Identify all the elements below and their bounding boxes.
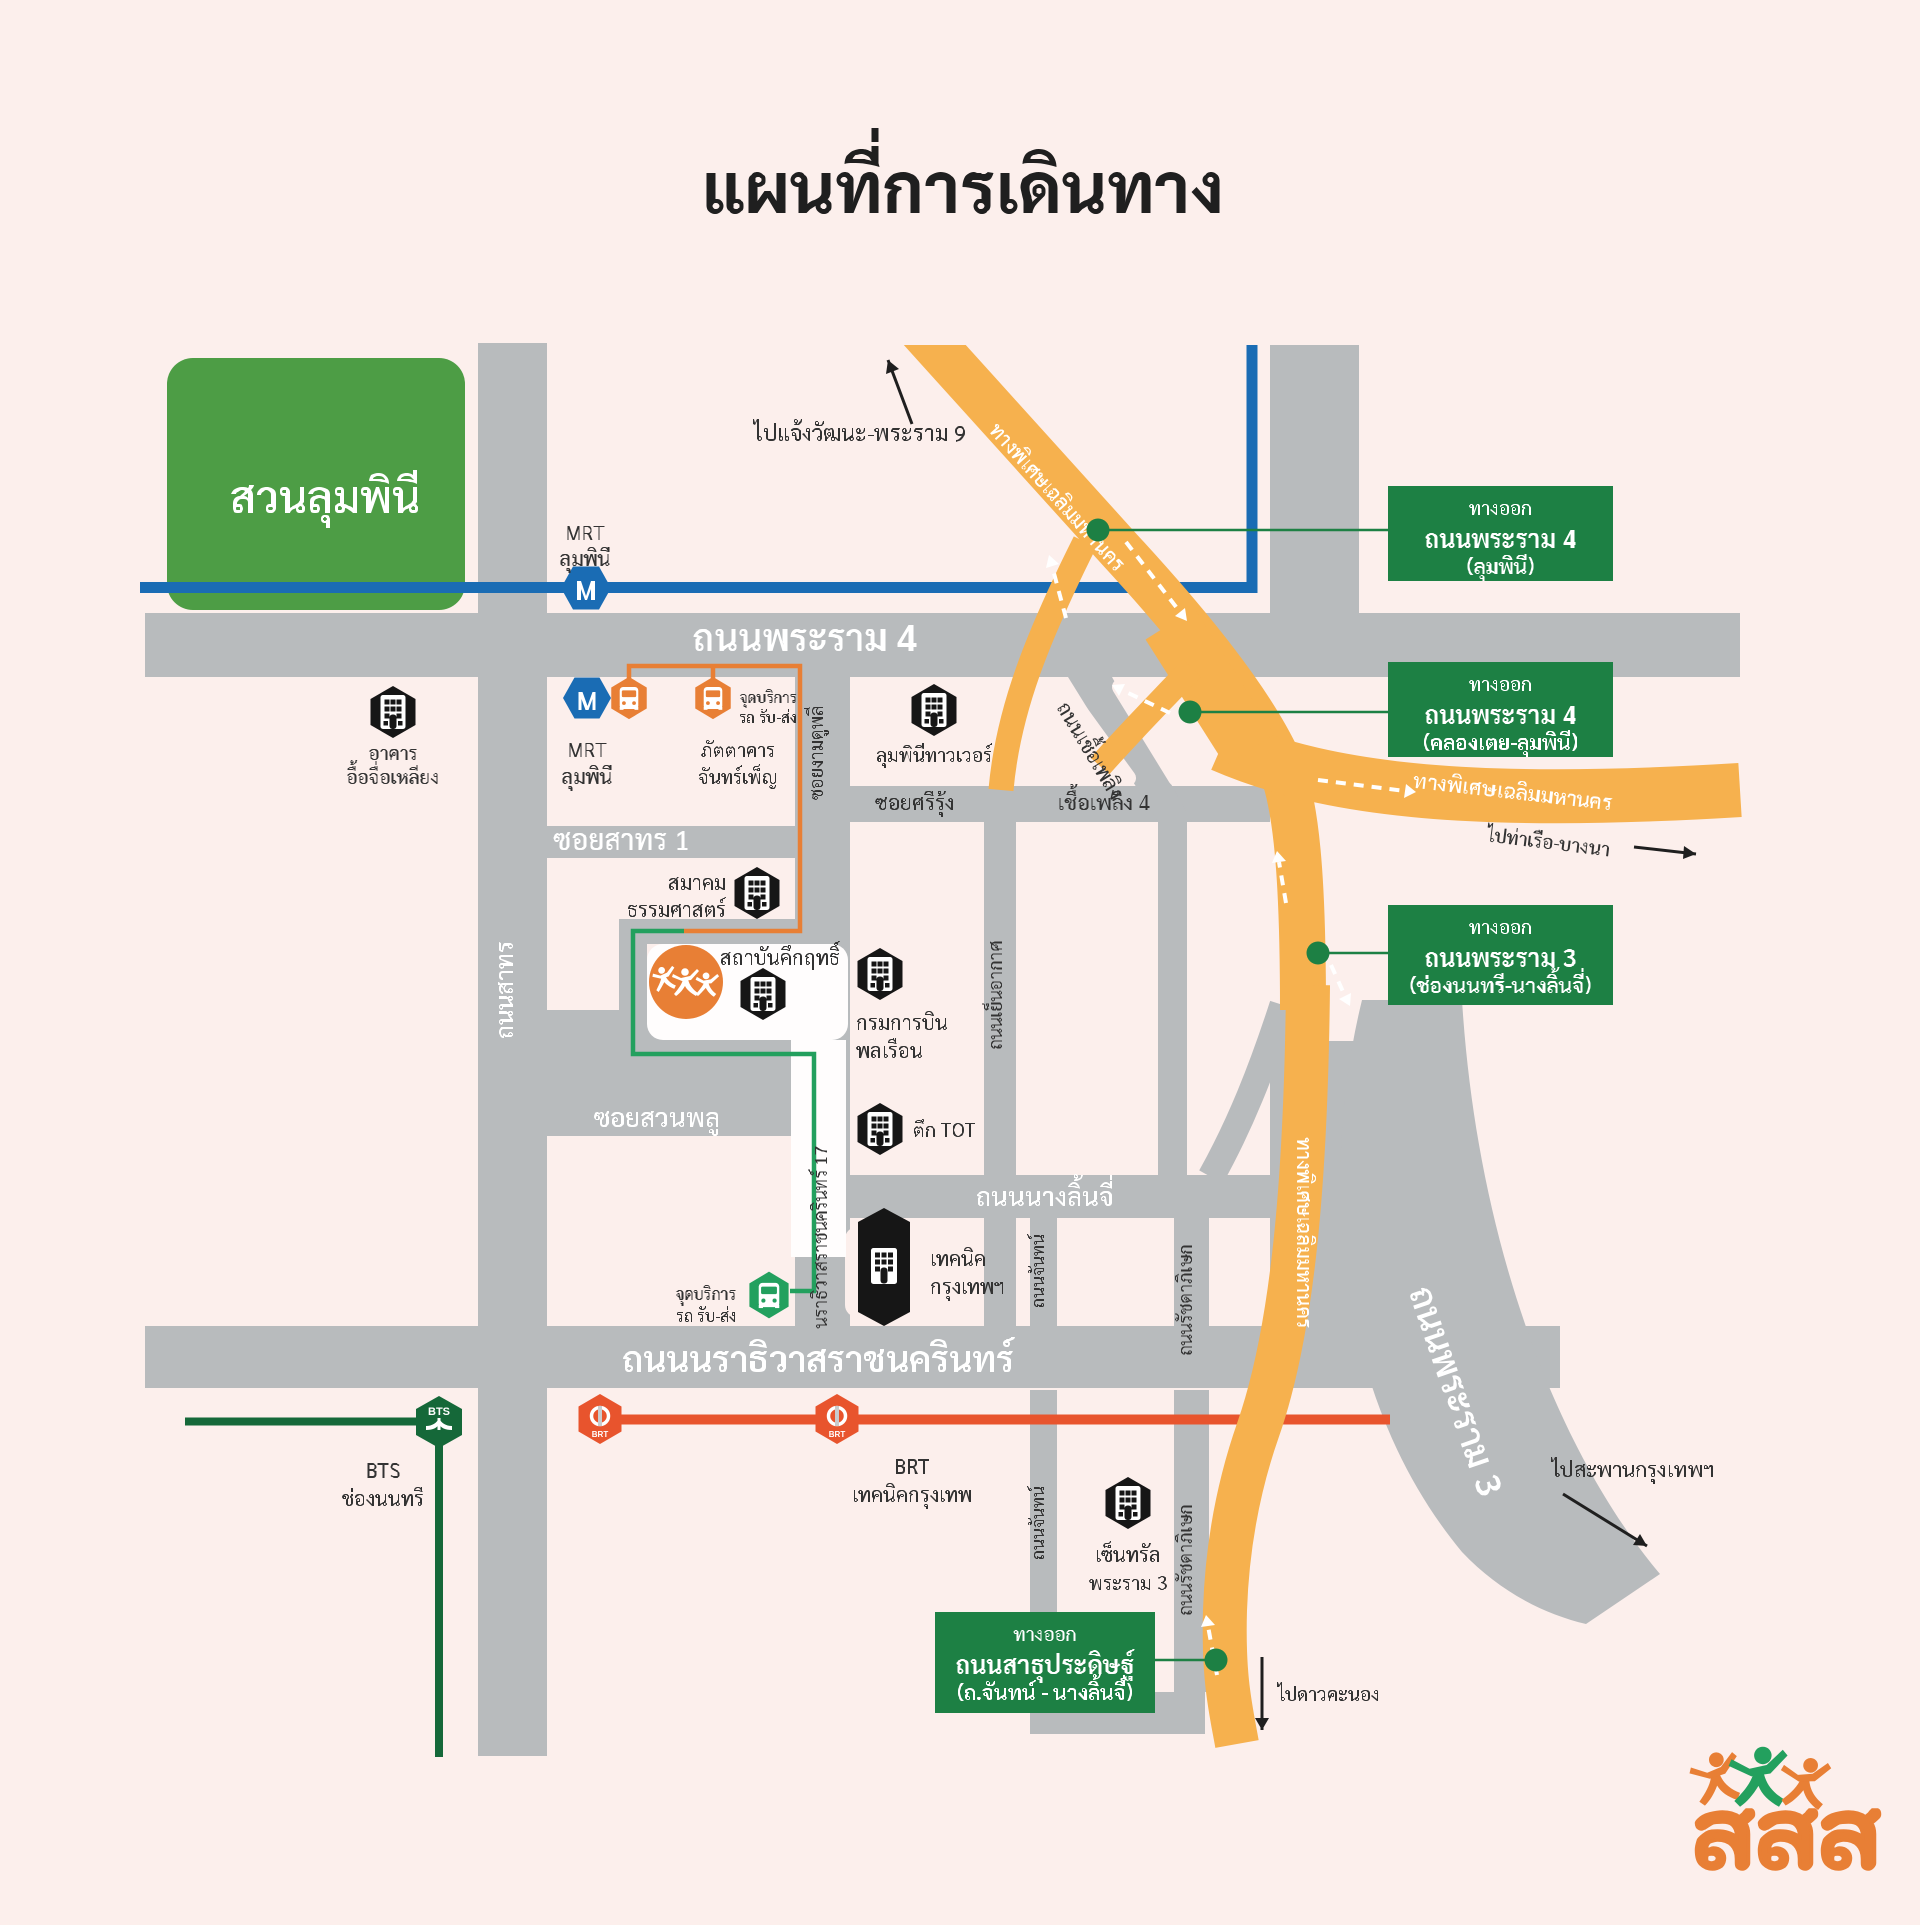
- svg-text:BRT: BRT: [592, 1430, 609, 1439]
- svg-text:BRT: BRT: [829, 1430, 846, 1439]
- svg-text:BTS: BTS: [428, 1406, 450, 1418]
